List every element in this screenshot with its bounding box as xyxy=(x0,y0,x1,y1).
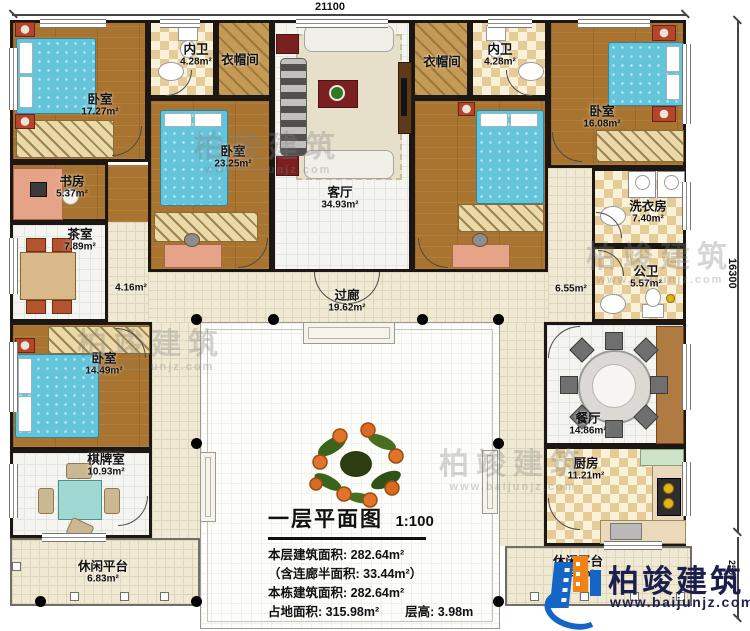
bed-pillow xyxy=(19,76,33,108)
dimension-line-top xyxy=(12,14,686,16)
side-steps xyxy=(200,452,216,522)
window xyxy=(604,541,662,550)
label-inner-bath-right: 内卫4.28m² xyxy=(484,42,516,67)
label-cloakroom-right: 衣帽间 xyxy=(423,55,461,69)
nightstand xyxy=(458,102,475,116)
entry-steps xyxy=(303,322,395,344)
railing-post xyxy=(70,592,79,601)
dining-table-top xyxy=(592,364,636,408)
dining-chair xyxy=(650,376,668,394)
label-study: 书房5.37m² xyxy=(56,174,88,199)
dining-chair xyxy=(605,420,623,438)
column-dot xyxy=(268,314,279,325)
brand-url: www.baijunjz.com xyxy=(610,594,750,610)
plant xyxy=(331,87,343,99)
dimension-top: 21100 xyxy=(315,1,345,13)
window xyxy=(9,48,18,110)
stat-floor-area: 本层建筑面积: 282.64m² xyxy=(268,546,498,565)
nightstand xyxy=(15,114,35,129)
chess-chair xyxy=(38,488,54,514)
side-table xyxy=(276,34,299,54)
label-living-room: 客厅34.93m² xyxy=(321,185,358,210)
desk xyxy=(452,244,510,268)
floor-drain xyxy=(666,294,675,303)
floor-plan-canvas: 卧室17.27m² 内卫4.28m² 衣帽间 卧室23.25m² 客厅34.93… xyxy=(0,0,750,631)
sofa xyxy=(304,150,394,179)
window xyxy=(682,44,691,124)
washer-door xyxy=(664,175,679,190)
dining-chair xyxy=(605,332,623,350)
tea-chair xyxy=(26,300,46,314)
burner xyxy=(663,498,674,509)
window xyxy=(578,19,650,28)
monitor xyxy=(30,182,47,197)
title-underline xyxy=(268,537,426,540)
toilet xyxy=(645,288,661,307)
room-hall-left xyxy=(108,222,148,322)
label-chess-room: 棋牌室10.93m² xyxy=(87,452,125,477)
bed-pillow xyxy=(510,113,538,127)
title-block: 一层平面图 1:100 本层建筑面积: 282.64m² （含连廊半面积: 33… xyxy=(268,503,498,622)
column-dot xyxy=(191,314,202,325)
nightstand xyxy=(652,106,676,122)
bed-pillow xyxy=(666,74,680,100)
bed-pillow xyxy=(480,113,508,127)
label-dining: 餐厅14.86m² xyxy=(569,411,606,436)
stat-height: 层高: 3.98m xyxy=(405,603,473,622)
bed-pillow xyxy=(164,113,192,127)
window xyxy=(682,182,691,230)
column-dot xyxy=(493,314,504,325)
label-inner-bath-left: 内卫4.28m² xyxy=(180,42,212,67)
nightstand xyxy=(15,22,35,37)
burner xyxy=(663,483,674,494)
railing-post xyxy=(530,592,539,601)
nightstand xyxy=(652,25,676,41)
window xyxy=(9,238,18,294)
tea-chair xyxy=(52,300,72,314)
window xyxy=(488,19,532,28)
desk xyxy=(164,244,222,268)
column-dot xyxy=(191,438,202,449)
bed-pillow xyxy=(666,46,680,72)
stat-footprint: 占地面积: 315.98m² xyxy=(268,603,379,622)
sofa xyxy=(304,25,394,52)
desk-chair xyxy=(472,233,488,247)
label-bedroom-center-left: 卧室23.25m² xyxy=(214,144,251,169)
dining-chair xyxy=(560,376,578,394)
room-hall-right xyxy=(548,168,592,322)
window xyxy=(40,19,106,28)
side-table xyxy=(276,156,299,176)
label-hall-left: 4.16m² xyxy=(115,282,147,293)
window xyxy=(9,342,18,412)
label-corridor: 过廊19.62m² xyxy=(328,288,365,313)
column-dot xyxy=(417,314,428,325)
label-bedroom-top-right: 卧室16.08m² xyxy=(583,104,620,129)
stat-building-area: 本栋建筑面积: 282.64m² xyxy=(268,584,498,603)
label-hall-right: 6.55m² xyxy=(555,283,587,294)
railing-post xyxy=(160,592,169,601)
walkway-left xyxy=(152,322,200,538)
flower-decoration xyxy=(302,420,410,510)
tea-chair xyxy=(26,238,46,252)
label-laundry: 洗衣房7.40m² xyxy=(629,199,667,224)
walkway-right xyxy=(498,322,544,546)
prep-counter xyxy=(640,449,684,466)
stat-corridor-area: （含连廊半面积: 33.44m²） xyxy=(268,565,498,584)
tv xyxy=(401,78,407,116)
bed-pillow xyxy=(194,113,222,127)
railing-post xyxy=(120,592,129,601)
plan-scale: 1:100 xyxy=(395,513,433,530)
bed-pillow xyxy=(18,358,32,394)
label-bedroom-top-left: 卧室17.27m² xyxy=(81,92,118,117)
column-dot xyxy=(191,596,202,607)
dimension-right: 16300 xyxy=(726,258,738,289)
hall-strip xyxy=(108,165,148,222)
brand-logo-icon xyxy=(546,554,606,620)
label-platform-left: 休闲平台6.83m² xyxy=(78,559,128,584)
washer-door xyxy=(635,175,650,190)
logo-tower-orange xyxy=(573,556,588,592)
sofa xyxy=(280,58,307,156)
window xyxy=(682,344,691,410)
brand-logo: 柏竣建筑 www.baijunjz.com xyxy=(540,550,750,628)
page-title: 一层平面图 xyxy=(268,508,383,531)
window xyxy=(682,462,691,516)
kitchen-sink xyxy=(610,523,642,540)
window xyxy=(42,533,106,542)
window xyxy=(296,19,388,28)
nightstand xyxy=(15,338,35,353)
column-dot xyxy=(35,596,46,607)
bed-pillow xyxy=(19,42,33,74)
desk-chair xyxy=(184,233,200,247)
window xyxy=(9,464,18,518)
bed-pillow xyxy=(18,396,32,432)
logo-tower-blue-small xyxy=(590,570,601,596)
tea-table xyxy=(20,252,76,300)
wardrobe xyxy=(596,130,684,162)
column-dot xyxy=(493,438,504,449)
wardrobe xyxy=(458,204,544,232)
label-kitchen: 厨房11.21m² xyxy=(568,456,605,481)
sink xyxy=(600,294,626,314)
label-public-bath: 公卫5.57m² xyxy=(630,264,662,289)
chess-table xyxy=(58,480,102,520)
label-cloakroom-left: 衣帽间 xyxy=(221,53,259,67)
label-tea-room: 茶室7.89m² xyxy=(64,227,96,252)
label-bedroom-bottom-left: 卧室14.49m² xyxy=(85,351,122,376)
railing-post xyxy=(12,562,21,571)
window xyxy=(160,19,200,28)
